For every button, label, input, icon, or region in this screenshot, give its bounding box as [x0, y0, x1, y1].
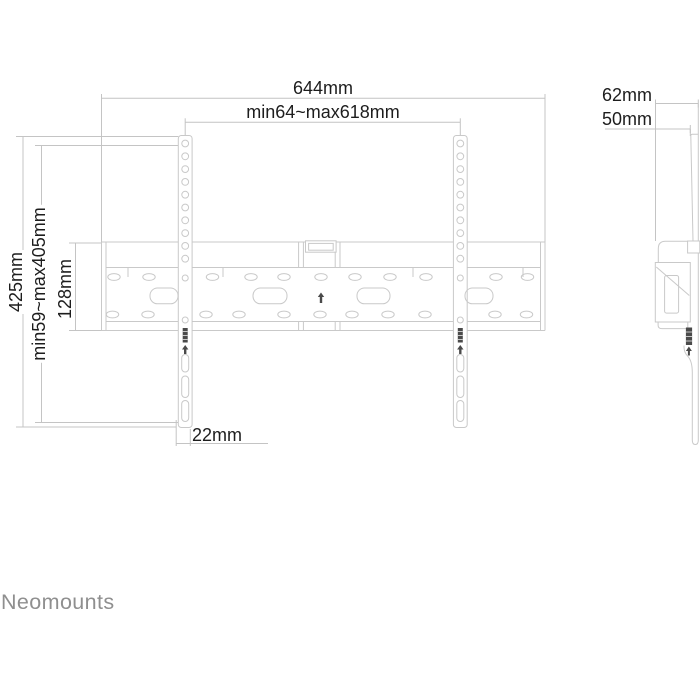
label-plate-height: 128mm — [56, 257, 74, 321]
side-profile — [655, 104, 700, 445]
label-total-width: 644mm — [101, 79, 545, 97]
side-view — [605, 100, 700, 445]
left-vesa-rail — [178, 136, 192, 428]
label-total-height: 425mm — [7, 250, 25, 314]
front-view — [16, 94, 545, 446]
label-total-depth: 62mm — [580, 86, 652, 104]
label-rail-offset: 22mm — [192, 426, 242, 444]
technical-drawing-canvas: 644mm min64~max618mm 425mm min59~max405m… — [0, 0, 700, 700]
label-adjustable-height: min59~max405mm — [30, 205, 48, 363]
label-profile-depth: 50mm — [580, 110, 652, 128]
brand-logo: Neomounts — [1, 590, 115, 615]
center-marker-arrow — [318, 293, 324, 304]
right-vesa-rail — [453, 136, 467, 428]
label-adjustable-width: min64~max618mm — [185, 103, 461, 121]
center-clamp — [299, 241, 340, 331]
